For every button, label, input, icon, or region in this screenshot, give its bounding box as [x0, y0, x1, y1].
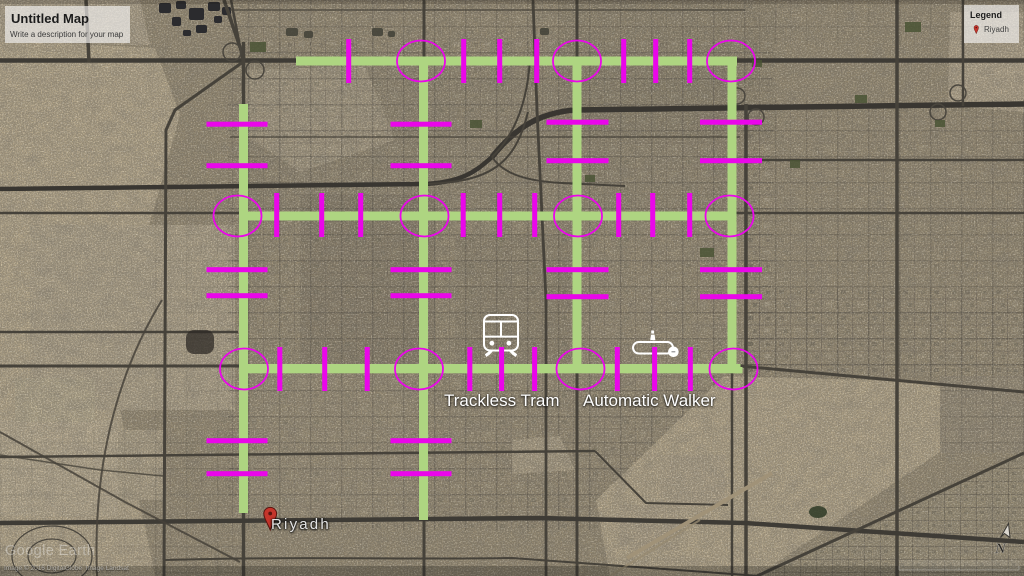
svg-text:N: N — [994, 541, 1007, 557]
